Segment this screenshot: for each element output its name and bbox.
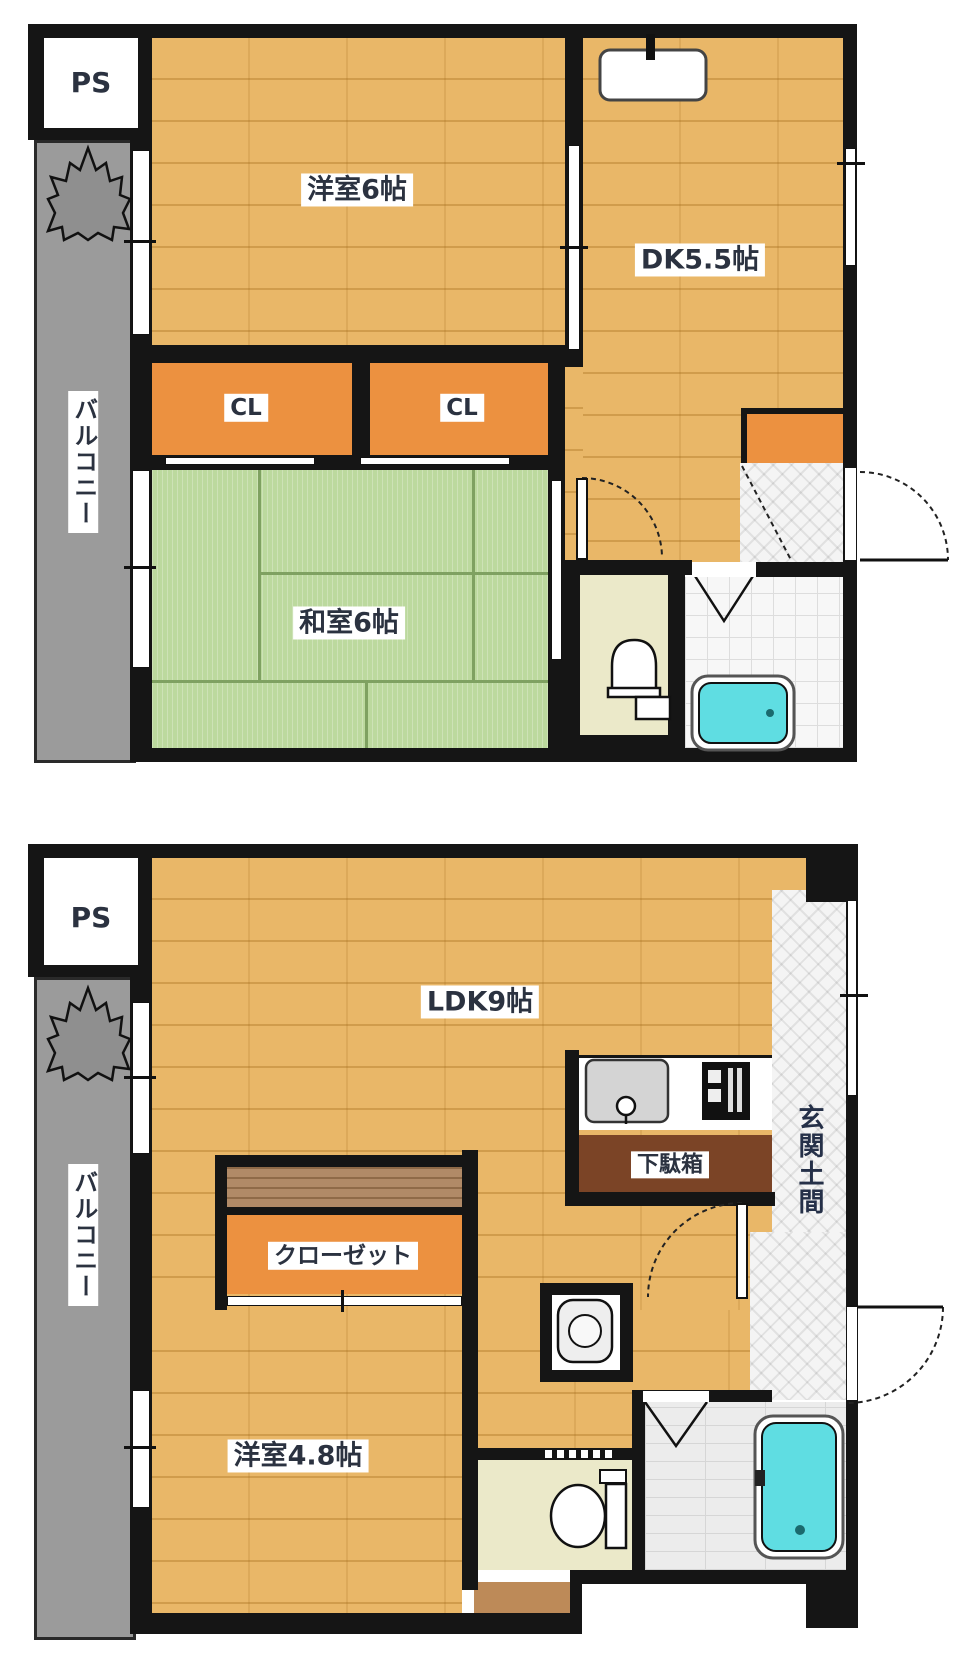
wall [28, 24, 44, 140]
bath-door-gap-upper [692, 562, 756, 577]
window-tick [124, 1076, 156, 1079]
room-label-western-room-6: 洋室6帖 [301, 173, 413, 206]
toilet-threshold [545, 1450, 617, 1458]
wall [28, 24, 857, 38]
room-label-cl-right: CL [440, 394, 484, 422]
wall [462, 1150, 478, 1310]
entrance-doma-tile2 [750, 1232, 846, 1400]
kitchen-counter [579, 1055, 772, 1130]
hallway-lower-floor2 [632, 1310, 750, 1402]
window-tick [124, 240, 156, 243]
room-label-balcony-upper: バルコニー [68, 391, 98, 533]
wall [28, 844, 44, 977]
wall [668, 560, 685, 750]
room-label-ps-upper: PS [71, 67, 112, 99]
room-label-western-room-48: 洋室4.8帖 [228, 1439, 369, 1472]
tatami-line [365, 680, 368, 750]
wall [352, 345, 370, 460]
bathroom-upper-floor [685, 577, 843, 748]
tatami-line [258, 572, 548, 575]
wall [215, 1155, 227, 1310]
window-tick [341, 1290, 344, 1312]
wall [632, 1390, 645, 1582]
sliding-door [551, 480, 562, 660]
room-label-shoe-cabinet: 下駄箱 [631, 1151, 709, 1178]
closet-sliding-door [227, 1296, 462, 1306]
window-tick [124, 566, 156, 569]
wall [565, 735, 668, 748]
wall [138, 24, 152, 140]
window [132, 1390, 150, 1508]
closet-sliding-door [165, 457, 315, 465]
shoe-box-upper [741, 408, 843, 463]
bath-door-gap-lower [643, 1391, 709, 1402]
window [845, 148, 856, 266]
tatami-line [258, 470, 261, 680]
wall [565, 560, 580, 750]
wall [740, 562, 857, 577]
room-label-closet: クローゼット [268, 1242, 418, 1270]
room-label-ps-lower: PS [71, 902, 112, 934]
closet-shelf [227, 1167, 462, 1207]
window [847, 900, 857, 1096]
wall [215, 1155, 478, 1167]
wall [28, 965, 152, 977]
wall [565, 1050, 579, 1135]
window-tick [560, 246, 588, 249]
toilet-room-upper-floor [580, 575, 668, 735]
balcony-lower [34, 977, 136, 1640]
wall [130, 748, 857, 762]
window-tick [840, 994, 868, 997]
wall [570, 1570, 582, 1634]
floor-plan-sheet: PS バルコニー 洋室6帖 DK5.5帖 CL CL 和室6帖 PS バルコニー… [0, 0, 960, 1654]
tatami-line [472, 470, 475, 680]
front-door-arc-lower [847, 1307, 943, 1403]
front-door-arc-upper [860, 472, 948, 560]
front-door-gap-lower [847, 1307, 857, 1400]
closet-sliding-door [360, 457, 510, 465]
bathroom-lower-floor [645, 1402, 846, 1570]
room-label-cl-left: CL [224, 394, 268, 422]
floor-strip [474, 1582, 570, 1613]
room-label-japanese-room: 和室6帖 [293, 606, 405, 639]
door-leaf [736, 1203, 748, 1299]
wall [227, 1207, 462, 1215]
entrance-tile-upper [740, 463, 843, 562]
window [132, 470, 150, 668]
wall [570, 1570, 858, 1584]
room-label-ldk: LDK9帖 [421, 985, 539, 1018]
window-tick [124, 1446, 156, 1449]
door-leaf [576, 478, 588, 560]
washbasin-niche [552, 1295, 620, 1370]
wall [843, 24, 857, 762]
room-label-dk: DK5.5帖 [635, 243, 765, 276]
wall [130, 1613, 582, 1634]
window-tick [837, 162, 865, 165]
wall [138, 844, 152, 977]
toilet-room-lower-floor [474, 1460, 632, 1570]
room-label-entrance-doma: 玄関土間 [792, 1098, 824, 1222]
tatami-line [152, 680, 548, 683]
wall [28, 128, 152, 140]
front-door-gap-upper [845, 468, 856, 560]
wall [806, 1584, 858, 1628]
room-label-balcony-lower: バルコニー [68, 1164, 98, 1306]
